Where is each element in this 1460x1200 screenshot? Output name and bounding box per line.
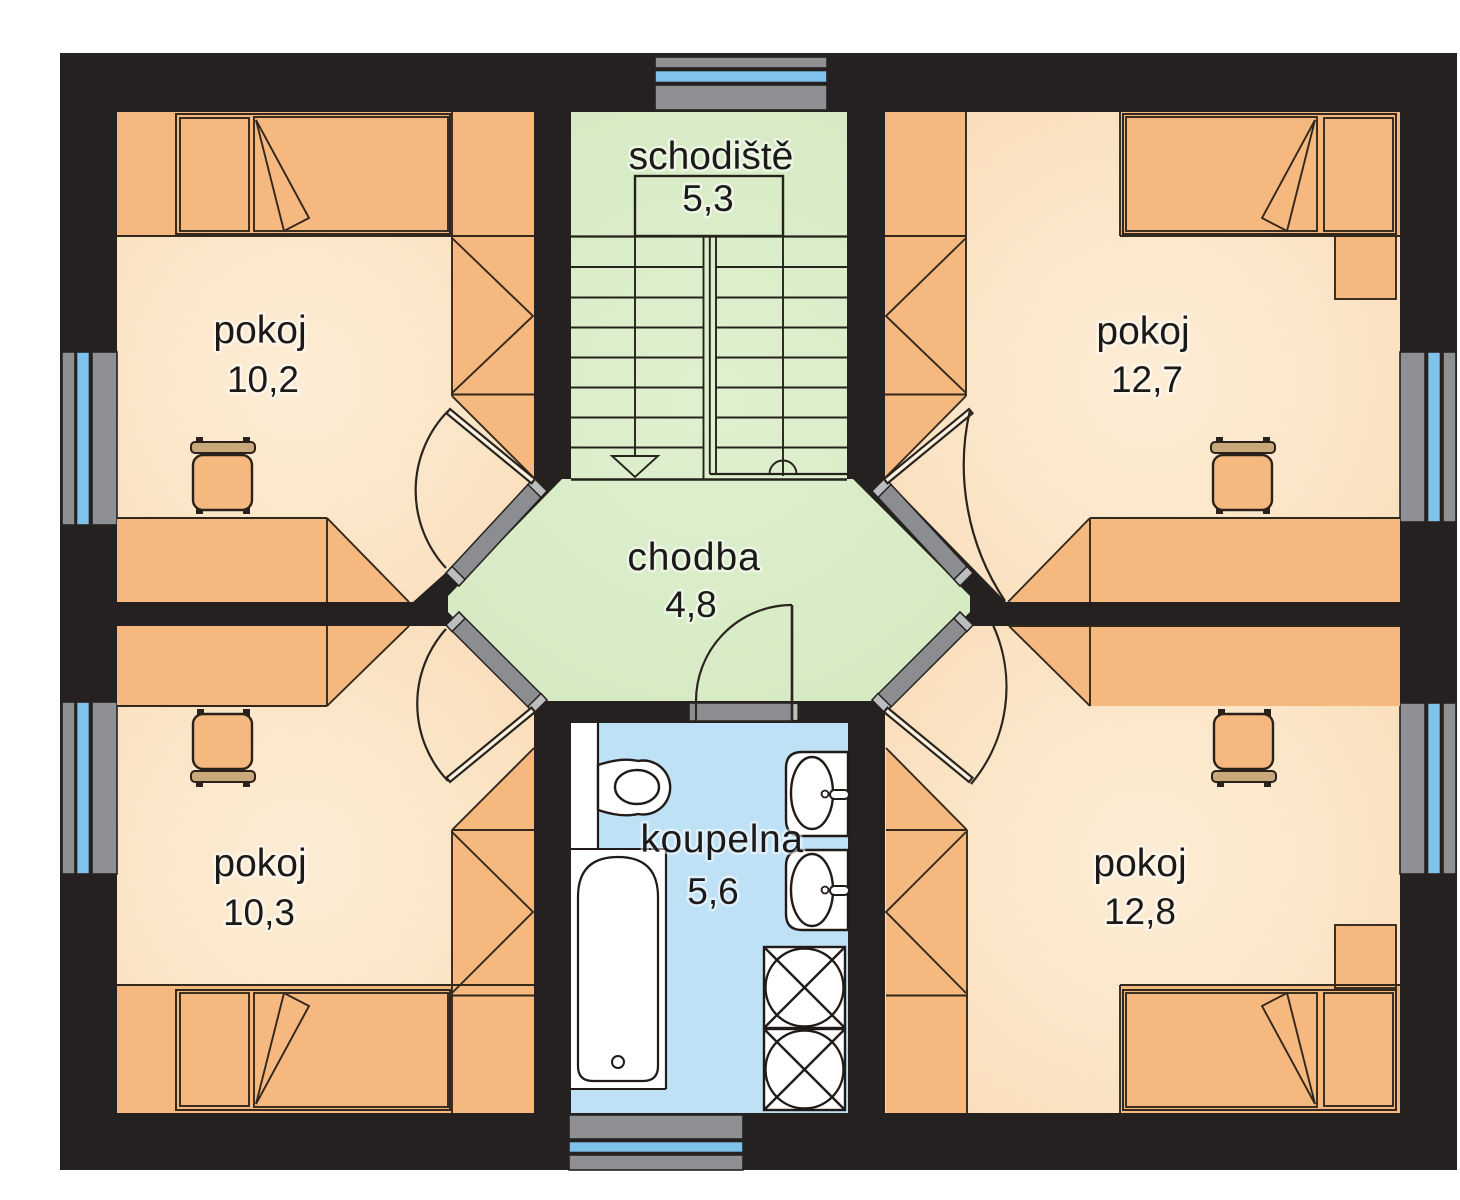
svg-text:5,6: 5,6: [687, 871, 738, 912]
svg-text:schodiště: schodiště: [629, 135, 794, 178]
svg-text:5,3: 5,3: [682, 178, 733, 219]
svg-text:pokoj: pokoj: [213, 842, 306, 885]
svg-text:pokoj: pokoj: [1096, 310, 1189, 353]
svg-text:10,2: 10,2: [227, 359, 299, 400]
svg-text:10,3: 10,3: [223, 892, 295, 933]
svg-text:chodba: chodba: [627, 536, 760, 579]
svg-text:pokoj: pokoj: [213, 309, 306, 352]
svg-text:pokoj: pokoj: [1093, 842, 1186, 885]
svg-text:12,8: 12,8: [1104, 891, 1176, 932]
svg-text:12,7: 12,7: [1111, 359, 1183, 400]
svg-text:koupelna: koupelna: [640, 818, 803, 861]
svg-text:4,8: 4,8: [665, 584, 716, 625]
